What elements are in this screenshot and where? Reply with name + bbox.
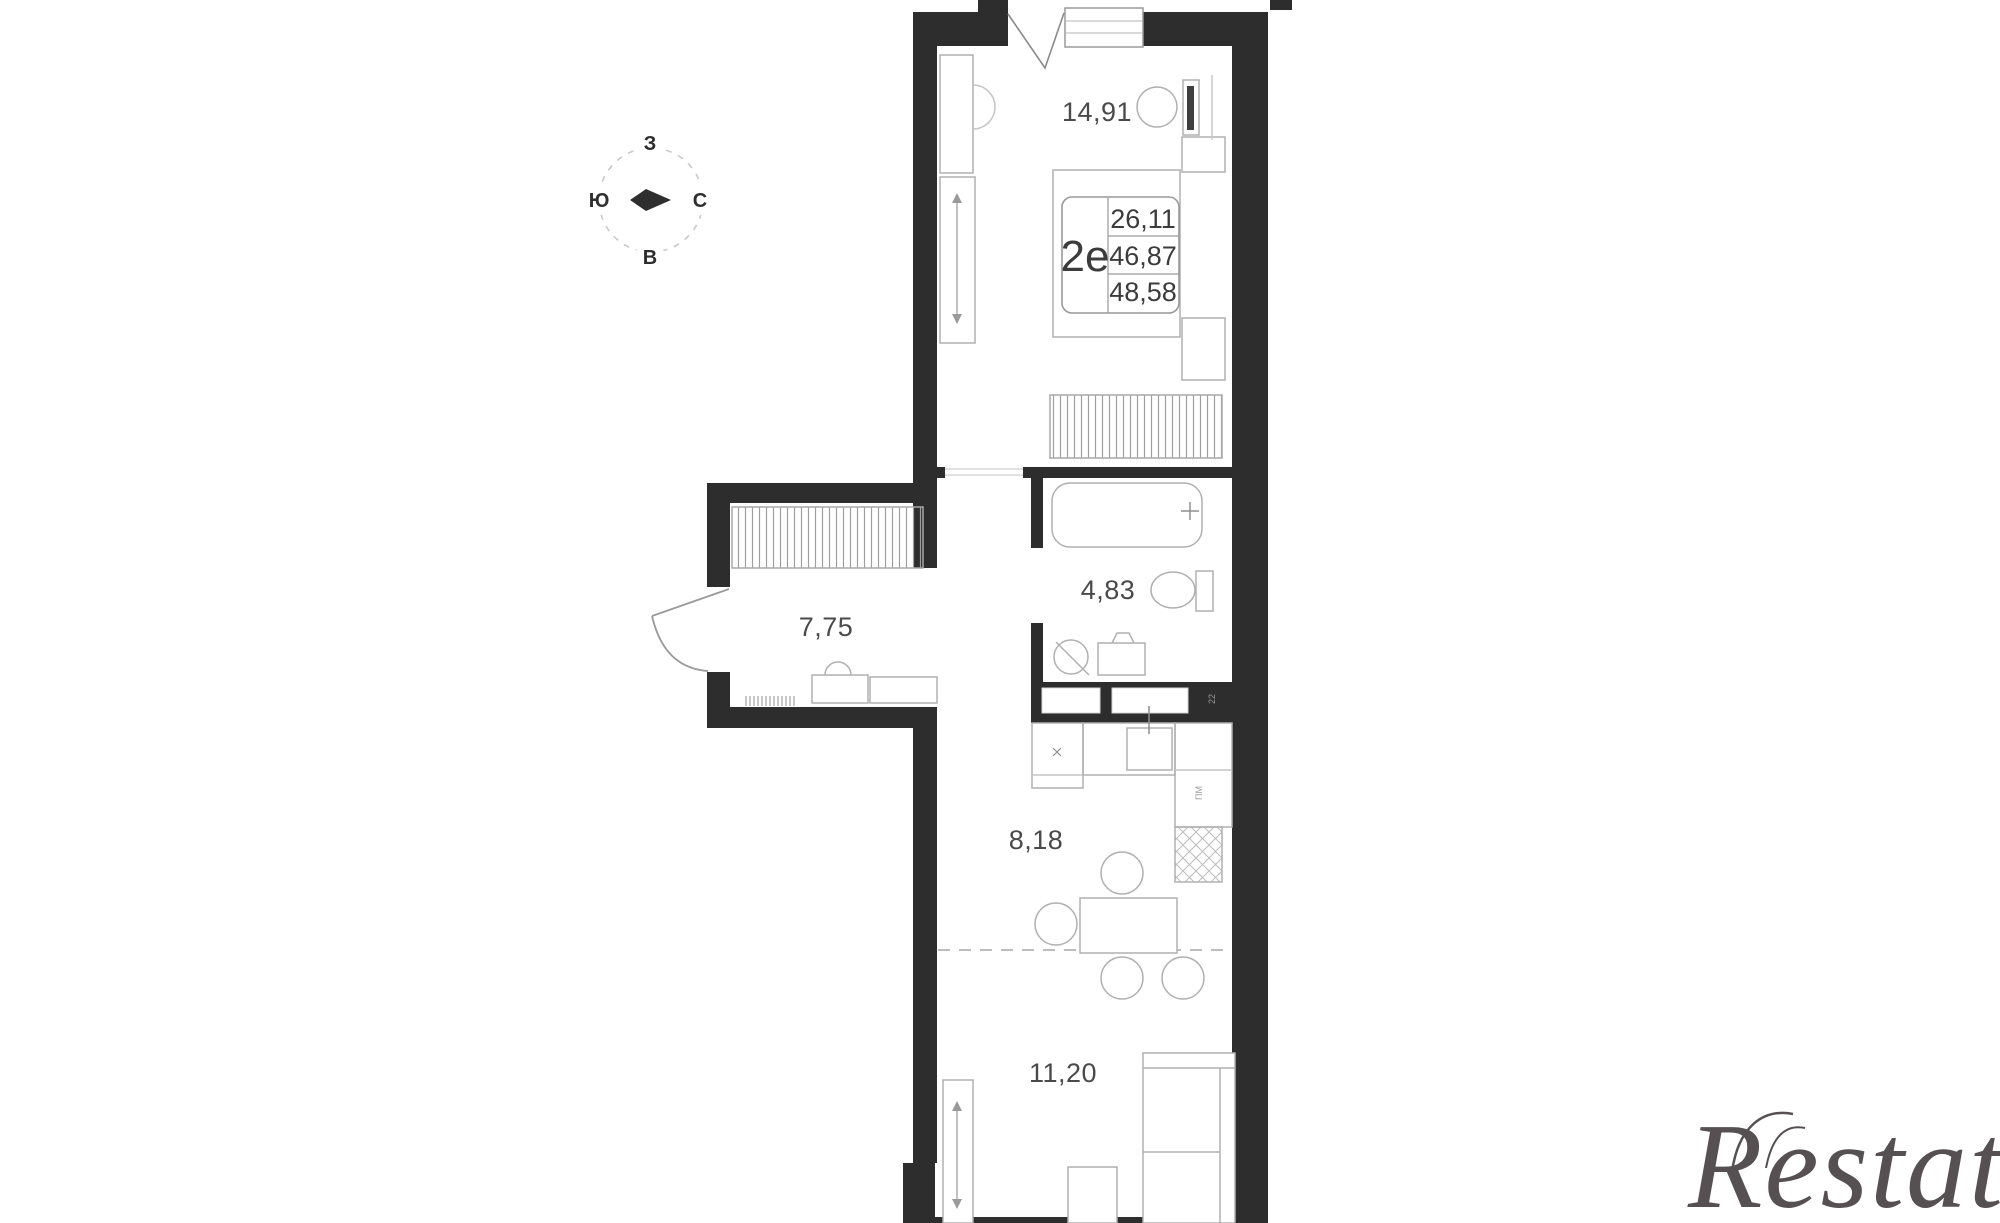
tv-stand	[1068, 1167, 1117, 1223]
wall-left-kitchen	[913, 707, 937, 1163]
dining-chair-bottom-2	[1162, 957, 1204, 999]
compass-arrow-icon	[630, 189, 671, 211]
entrance-door	[652, 589, 729, 671]
wall-hall-top	[707, 483, 937, 503]
wardrobe	[940, 177, 975, 343]
apartment-area-1: 26,11	[1110, 204, 1176, 234]
washing-machine	[1098, 633, 1145, 675]
wall-bathroom-left-upper	[1031, 478, 1043, 548]
hall-wardrobe-hatch	[732, 507, 923, 568]
dining-chair-left	[1035, 903, 1077, 945]
wall-hall-bottom	[707, 707, 937, 728]
apartment-card: 2е 26,11 46,87 48,58	[1061, 197, 1179, 313]
counter-mid	[1083, 723, 1175, 775]
compass-north-label: С	[693, 190, 707, 212]
room-label-kitchen: 8,18	[1009, 825, 1064, 855]
sofa	[1143, 1053, 1235, 1223]
apartment-type-label: 2е	[1061, 232, 1110, 281]
apartment-area-3: 48,58	[1109, 277, 1177, 307]
compass-south-label: Ю	[589, 190, 610, 212]
wall-stub-top-left	[978, 0, 1008, 12]
wall-bedroom-bathroom	[1023, 467, 1232, 478]
bedroom-door-threshold	[945, 469, 1023, 475]
compass-east-label: В	[643, 247, 657, 269]
room-label-bedroom: 14,91	[1062, 97, 1132, 127]
floor-plan-page: 2е 26,11 46,87 48,58	[0, 0, 2000, 1223]
counter-right	[1175, 723, 1232, 827]
watermark-logo-text: Restate	[1687, 1099, 2000, 1223]
closet	[940, 55, 995, 173]
toilet	[1151, 571, 1213, 611]
dining-table	[1080, 898, 1177, 953]
bathtub-tap	[1181, 502, 1199, 520]
hall-cabinet-1	[812, 662, 868, 703]
bathtub	[1052, 483, 1202, 547]
room-label-living-room: 11,20	[1029, 1058, 1097, 1088]
compass: З Ю С В	[584, 128, 715, 272]
wall-left-lower	[903, 1163, 935, 1223]
compass-west-label: З	[644, 133, 657, 155]
chair	[1137, 87, 1177, 127]
vent-shaft	[1175, 827, 1222, 882]
room-label-hallway: 7,75	[799, 612, 854, 642]
entrance-door-arc	[652, 616, 708, 671]
balcony-window	[1065, 8, 1143, 47]
wall-bedroom-bottom-left	[913, 467, 945, 478]
coat-rack-ticks	[746, 696, 794, 706]
watermark: Restate	[1687, 1099, 2000, 1223]
nightstand-bottom	[1182, 318, 1225, 380]
hallway-furniture	[732, 507, 937, 706]
built-in-wardrobe-hatch	[1050, 395, 1222, 458]
shelving-unit	[943, 1080, 973, 1223]
washbasin	[1054, 640, 1089, 675]
wall-right	[1232, 12, 1268, 1223]
hall-cabinet-2	[870, 677, 937, 703]
wall-hall-left-upper	[707, 483, 730, 587]
appliance-tiny-label: ПМ	[1194, 786, 1204, 800]
niche-tiny-label: 22	[1207, 694, 1217, 704]
balcony-door-swing	[1008, 13, 1064, 68]
apartment-area-2: 46,87	[1109, 241, 1177, 271]
nightstand-top	[1182, 137, 1225, 172]
radiator	[1183, 80, 1199, 135]
counter-left	[1032, 723, 1083, 788]
entrance-door-leaf	[652, 589, 729, 616]
wall-niches	[1042, 688, 1188, 713]
wall-stub-top-right	[1270, 0, 1292, 10]
dining-chair-bottom-1	[1101, 957, 1143, 999]
room-label-bathroom: 4,83	[1081, 575, 1136, 605]
dining-chair-top	[1101, 852, 1143, 894]
floor-plan-canvas: 2е 26,11 46,87 48,58	[0, 0, 2000, 1223]
